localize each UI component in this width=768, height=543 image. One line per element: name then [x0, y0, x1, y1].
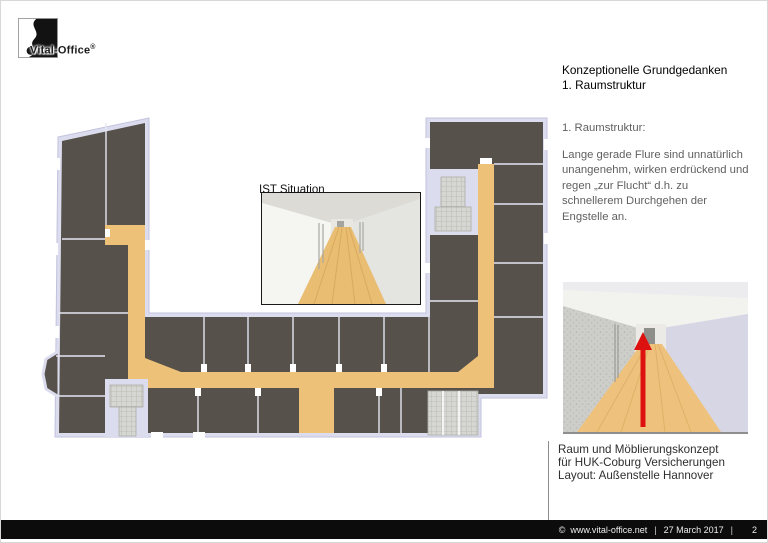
stairwell-bottom-right [428, 391, 478, 435]
project-caption: Raum und Möblierungskonzept für HUK-Cobu… [558, 443, 725, 482]
corridor-render-flucht [563, 282, 748, 432]
footer-copyright: © [559, 525, 566, 535]
logo-brand-text: Vital-Office® [30, 44, 96, 57]
stairwell-left [105, 379, 148, 438]
corridor-photo-flucht [563, 282, 748, 434]
inset-label: IST Situation [259, 184, 325, 196]
bay-window [43, 351, 59, 397]
footer-website: www.vital-office.net [570, 525, 647, 535]
corridor-render-ist [262, 193, 420, 304]
footer-page-number: 2 [752, 525, 757, 535]
stairwell-right-wing [429, 169, 478, 235]
body-paragraph: Lange gerade Flure sind unnatürlich unan… [562, 148, 752, 225]
caption-divider-line [548, 441, 549, 520]
footer-separator: | [731, 525, 733, 535]
registered-mark: ® [90, 44, 95, 51]
slide-title-line2: 1. Raumstruktur [562, 78, 727, 93]
section-subtitle: 1. Raumstruktur: [562, 122, 646, 134]
footer-separator: | [654, 525, 656, 535]
presentation-slide: Vital-Office® [0, 0, 768, 543]
footer-bar: © www.vital-office.net | 27 March 2017 |… [1, 520, 768, 539]
slide-title-line1: Konzeptionelle Grundgedanken [562, 63, 727, 78]
footer-date: 27 March 2017 [664, 525, 724, 535]
slide-title: Konzeptionelle Grundgedanken 1. Raumstru… [562, 63, 727, 93]
corridor-photo-ist: IST Situation [261, 192, 421, 305]
